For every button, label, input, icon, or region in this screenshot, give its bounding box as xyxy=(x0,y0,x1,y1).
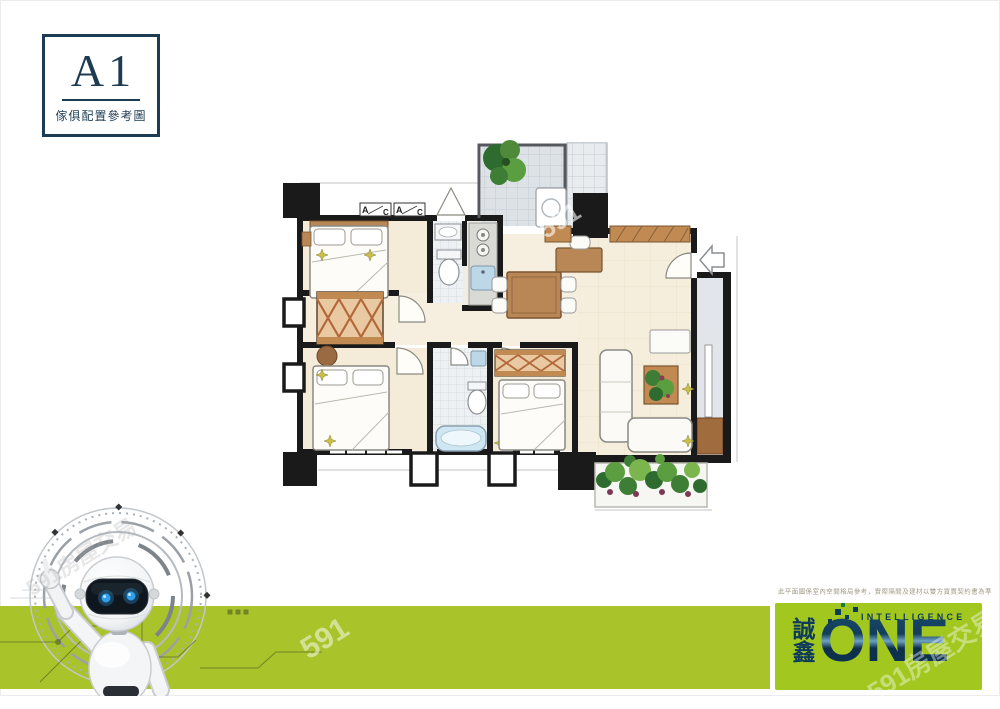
closet-section-label: A xyxy=(362,205,369,215)
unit-title: A1 xyxy=(71,48,135,94)
bedroom-3 xyxy=(495,350,565,450)
disclaimer-text: 此平面圖係室內空間格局參考，實際隔間及建材以雙方買賣契約書為準 xyxy=(778,587,953,596)
robot-eye xyxy=(102,594,111,603)
unit-title-underline xyxy=(62,99,140,101)
brand-company-name: 誠 鑫 xyxy=(791,618,817,663)
brand-company-char-1: 誠 xyxy=(791,618,817,641)
robot-eye xyxy=(127,592,136,601)
sofa-icon xyxy=(600,350,632,442)
brand-tagline: INTELLIGENCE xyxy=(861,612,965,622)
unit-card: A1 傢俱配置參考圖 xyxy=(42,34,160,137)
pixel-dot xyxy=(835,609,841,615)
kitchen-sink-icon xyxy=(471,266,495,290)
plant-cabinet-icon xyxy=(644,366,678,404)
kitchen xyxy=(469,223,497,305)
entry-cabinet xyxy=(545,226,690,242)
pixel-dot xyxy=(828,619,832,623)
closet-section-label: C xyxy=(417,208,423,217)
pixel-dot xyxy=(845,615,849,619)
page: { "unit_card": { "title": "A1", "caption… xyxy=(0,0,1000,696)
closet-section-label: A xyxy=(396,205,403,215)
dining-table-icon xyxy=(507,272,561,318)
robot-hand xyxy=(41,570,60,589)
bathroom-1 xyxy=(435,224,461,285)
toilet-icon xyxy=(468,390,486,414)
wardrobe-icon xyxy=(495,350,565,376)
entrance-arrow-icon xyxy=(700,246,724,274)
pixel-dot xyxy=(853,607,858,612)
closet-section-label: C xyxy=(383,208,389,217)
wardrobe-icon xyxy=(317,292,383,344)
brand-company-char-2: 鑫 xyxy=(791,641,817,664)
robot-mascot xyxy=(41,557,162,696)
desk-icon xyxy=(556,248,602,272)
toilet-icon xyxy=(439,259,459,285)
pouf-icon xyxy=(317,346,337,366)
side-table-icon xyxy=(650,330,690,353)
chair-icon xyxy=(492,277,507,292)
unit-caption: 傢俱配置參考圖 xyxy=(55,107,146,124)
pixel-dot xyxy=(841,603,845,607)
washer-icon xyxy=(536,188,566,227)
sink-icon xyxy=(471,351,486,366)
closet-labels: A C A C xyxy=(360,203,425,217)
brand-logo: 誠 鑫 ONE INTELLIGENCE xyxy=(775,603,982,690)
